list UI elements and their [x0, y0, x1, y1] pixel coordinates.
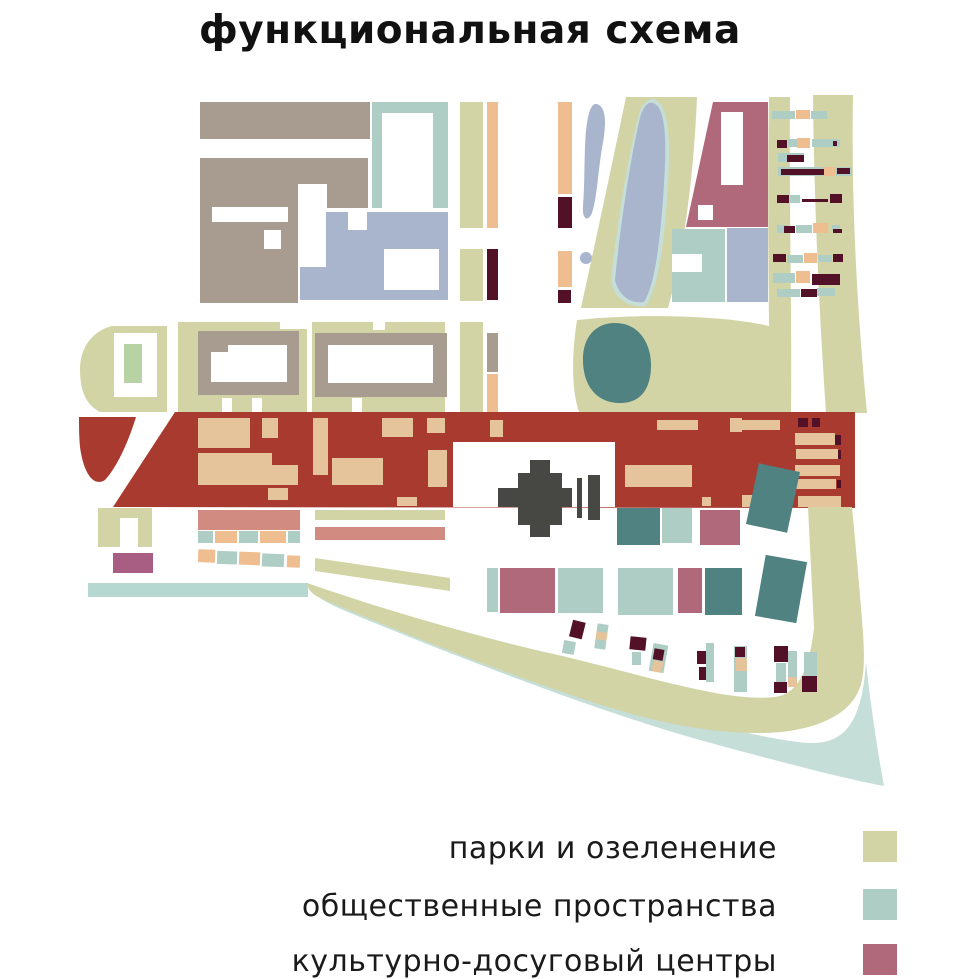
courtyard-blocks-row	[80, 322, 498, 413]
pond-dark	[583, 323, 651, 403]
functional-scheme-map	[0, 0, 957, 959]
red-band	[79, 412, 855, 508]
street-strips	[460, 102, 572, 303]
blocks-below-band-left	[98, 508, 450, 591]
promenade-and-sweep	[88, 507, 884, 786]
district-top-left	[200, 102, 448, 303]
red-wedge	[79, 417, 136, 482]
